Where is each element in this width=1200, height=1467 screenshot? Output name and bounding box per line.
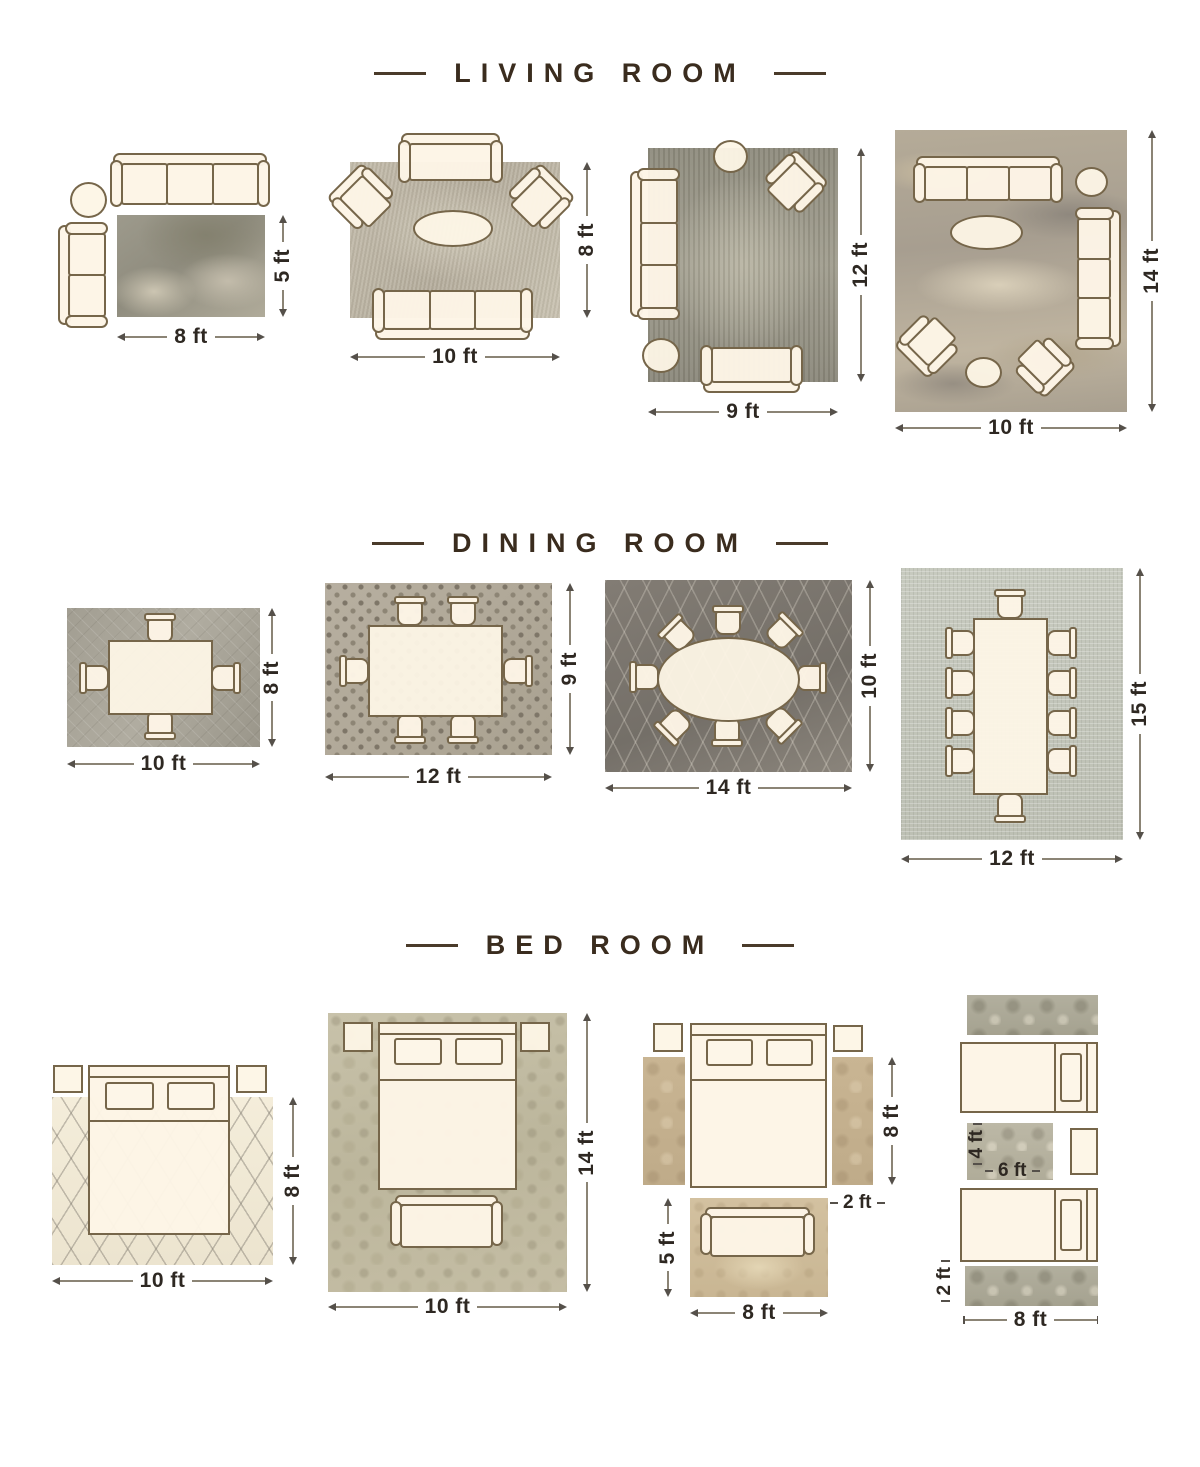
dim-foot-rug-width: 8 ft bbox=[690, 1300, 828, 1326]
three-seat-sofa bbox=[913, 156, 1063, 203]
dim-label: 9 ft bbox=[719, 400, 767, 424]
loveseat bbox=[700, 345, 803, 393]
three-seat-sofa bbox=[630, 168, 680, 320]
dim-width: 12 ft bbox=[901, 846, 1123, 872]
round-side-table bbox=[713, 140, 748, 173]
dim-label: 12 ft bbox=[849, 235, 873, 295]
round-side-table bbox=[70, 182, 107, 218]
dining-room-section-title: DINING ROOM bbox=[0, 528, 1200, 559]
dim-runner-width: 2 ft bbox=[830, 1190, 886, 1216]
dim-label: 9 ft bbox=[558, 645, 582, 693]
dining-chair bbox=[945, 669, 975, 697]
runner-rug bbox=[965, 1266, 1098, 1306]
twin-bed bbox=[960, 1042, 1098, 1113]
nightstand bbox=[236, 1065, 267, 1093]
runner-rug bbox=[832, 1057, 873, 1185]
dim-label: 14 ft bbox=[699, 776, 759, 800]
dim-height: 12 ft bbox=[848, 148, 874, 382]
oval-coffee-table bbox=[950, 215, 1023, 250]
nightstand bbox=[833, 1025, 863, 1052]
runner-rug bbox=[967, 995, 1098, 1035]
three-seat-sofa bbox=[372, 288, 533, 340]
dim-label: 8 ft bbox=[880, 1097, 904, 1145]
dining-chair bbox=[396, 596, 424, 626]
dim-label: 2 ft bbox=[838, 1192, 877, 1214]
dim-height: 5 ft bbox=[270, 215, 296, 317]
dim-width: 10 ft bbox=[52, 1268, 273, 1294]
title-dash bbox=[406, 944, 458, 947]
dim-label: 10 ft bbox=[134, 752, 194, 776]
rug-size-guide: LIVING ROOM 8 ft 5 ft 10 ft bbox=[0, 0, 1200, 1467]
dim-height: 14 ft bbox=[1139, 130, 1165, 412]
loveseat bbox=[58, 222, 108, 328]
dim-label: 15 ft bbox=[1128, 674, 1152, 734]
three-seat-sofa bbox=[1075, 207, 1121, 350]
dim-runner-length: 8 ft bbox=[963, 1307, 1098, 1333]
dining-chair bbox=[1047, 709, 1077, 737]
dining-chair bbox=[996, 793, 1024, 823]
long-dining-table bbox=[973, 618, 1048, 795]
dim-label: 10 ft bbox=[425, 345, 485, 369]
dining-chair bbox=[211, 664, 241, 692]
dim-height: 8 ft bbox=[259, 608, 285, 747]
dim-runner-height: 8 ft bbox=[879, 1057, 905, 1185]
dim-foot-rug-height: 5 ft bbox=[655, 1198, 681, 1297]
dim-label: 10 ft bbox=[418, 1295, 478, 1319]
nightstand bbox=[343, 1022, 373, 1052]
bed bbox=[690, 1023, 827, 1188]
nightstand bbox=[53, 1065, 83, 1093]
dim-width: 10 ft bbox=[350, 344, 560, 370]
oval-coffee-table bbox=[413, 210, 493, 247]
living-room-section-title: LIVING ROOM bbox=[0, 58, 1200, 89]
dim-label: 10 ft bbox=[858, 646, 882, 706]
dining-chair bbox=[1047, 669, 1077, 697]
bed bbox=[378, 1022, 517, 1190]
area-rug-8x5 bbox=[117, 215, 265, 317]
nightstand bbox=[520, 1022, 550, 1052]
dining-chair bbox=[449, 714, 477, 744]
bed bbox=[88, 1065, 230, 1235]
dim-width: 12 ft bbox=[325, 764, 552, 790]
dim-height: 8 ft bbox=[280, 1097, 306, 1265]
three-seat-sofa bbox=[110, 153, 270, 207]
dim-width: 10 ft bbox=[895, 415, 1127, 441]
dim-height: 9 ft bbox=[557, 583, 583, 755]
dim-width: 10 ft bbox=[67, 751, 260, 777]
dining-chair bbox=[714, 605, 742, 635]
dining-chair bbox=[503, 657, 533, 685]
dining-chair bbox=[79, 664, 109, 692]
dim-label: 12 ft bbox=[409, 765, 469, 789]
dim-label: 8 ft bbox=[1007, 1308, 1055, 1332]
dim-label: 10 ft bbox=[981, 416, 1041, 440]
dim-label: 8 ft bbox=[260, 654, 284, 702]
section-title-text: LIVING ROOM bbox=[454, 58, 746, 89]
dim-label: 8 ft bbox=[575, 216, 599, 264]
dim-width: 8 ft bbox=[117, 324, 265, 350]
dining-chair bbox=[996, 589, 1024, 619]
dining-chair bbox=[449, 596, 477, 626]
bench bbox=[390, 1195, 503, 1248]
dining-chair bbox=[945, 747, 975, 775]
dim-label: 5 ft bbox=[656, 1224, 680, 1272]
dining-chair bbox=[396, 714, 424, 744]
dim-label: 8 ft bbox=[281, 1157, 305, 1205]
dining-chair bbox=[797, 664, 827, 692]
loveseat bbox=[398, 133, 503, 183]
nightstand bbox=[653, 1023, 683, 1052]
dining-table bbox=[108, 640, 213, 715]
dining-chair bbox=[1047, 747, 1077, 775]
dim-runner-width: 2 ft bbox=[932, 1260, 958, 1310]
dim-label: 8 ft bbox=[167, 325, 215, 349]
dim-width: 10 ft bbox=[328, 1294, 567, 1320]
dining-chair bbox=[146, 613, 174, 643]
bench bbox=[700, 1207, 815, 1257]
dim-label: 2 ft bbox=[934, 1262, 956, 1301]
title-dash bbox=[774, 72, 826, 75]
runner-rug bbox=[643, 1057, 685, 1185]
dim-label: 8 ft bbox=[735, 1301, 783, 1325]
nightstand bbox=[1070, 1128, 1098, 1175]
round-side-table bbox=[1075, 167, 1108, 197]
title-dash bbox=[776, 542, 828, 545]
section-title-text: DINING ROOM bbox=[452, 528, 748, 559]
dim-width: 14 ft bbox=[605, 775, 852, 801]
title-dash bbox=[374, 72, 426, 75]
dim-label: 5 ft bbox=[271, 242, 295, 290]
dim-label: 12 ft bbox=[982, 847, 1042, 871]
twin-bed bbox=[960, 1188, 1098, 1262]
dim-label: 14 ft bbox=[575, 1123, 599, 1183]
oval-dining-table bbox=[657, 637, 800, 722]
dining-table bbox=[368, 625, 503, 717]
dim-label: 14 ft bbox=[1140, 241, 1164, 301]
dining-chair bbox=[945, 709, 975, 737]
dim-height: 10 ft bbox=[857, 580, 883, 772]
ottoman bbox=[642, 338, 680, 373]
dining-chair bbox=[1047, 629, 1077, 657]
ottoman bbox=[965, 357, 1002, 388]
dim-center-rug-width: 6 ft bbox=[985, 1158, 1059, 1184]
title-dash bbox=[742, 944, 794, 947]
dining-chair bbox=[629, 663, 659, 691]
dim-height: 8 ft bbox=[574, 162, 600, 318]
dining-chair bbox=[945, 629, 975, 657]
dim-label: 6 ft bbox=[993, 1160, 1032, 1182]
dining-chair bbox=[339, 657, 369, 685]
dim-label: 10 ft bbox=[133, 1269, 193, 1293]
bed-room-section-title: BED ROOM bbox=[0, 930, 1200, 961]
dim-height: 15 ft bbox=[1127, 568, 1153, 840]
dim-width: 9 ft bbox=[648, 399, 838, 425]
dim-height: 14 ft bbox=[574, 1013, 600, 1292]
section-title-text: BED ROOM bbox=[486, 930, 715, 961]
title-dash bbox=[372, 542, 424, 545]
